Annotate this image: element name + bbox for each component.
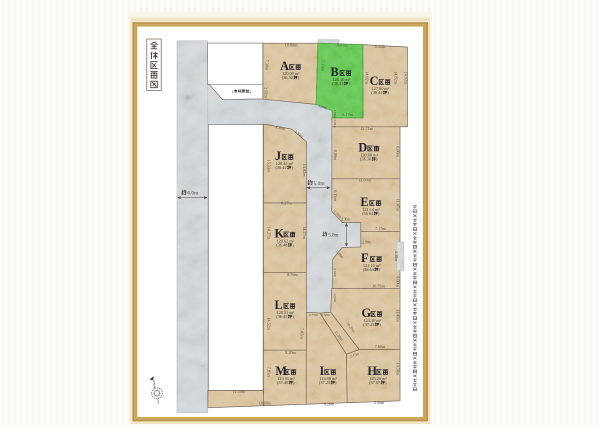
svg-text:6.42m: 6.42m: [375, 44, 386, 49]
svg-text:8.00m: 8.00m: [396, 276, 401, 287]
svg-text:6.0m: 6.0m: [187, 191, 199, 197]
svg-text:11.10m: 11.10m: [233, 389, 246, 394]
svg-text:(36.48: (36.48: [276, 242, 287, 247]
svg-text:12.71m: 12.71m: [360, 126, 373, 131]
svg-text:(37.23: (37.23: [319, 380, 330, 385]
svg-text:14.27m: 14.27m: [267, 227, 272, 240]
svg-text:11.07m: 11.07m: [395, 199, 400, 212]
svg-text:15.33m: 15.33m: [267, 160, 272, 173]
svg-text:7.30m: 7.30m: [265, 60, 270, 71]
svg-text:8.27m: 8.27m: [281, 201, 292, 206]
svg-text:(36.42: (36.42: [275, 165, 286, 170]
svg-text:14.02m: 14.02m: [365, 71, 370, 84]
svg-text:8.20m: 8.20m: [285, 350, 296, 355]
svg-text:10.76m: 10.76m: [372, 284, 385, 289]
svg-text:2.08m: 2.08m: [333, 119, 337, 128]
svg-text:0.75m: 0.75m: [309, 313, 318, 317]
svg-text:2.90m: 2.90m: [362, 240, 371, 244]
svg-text:5.0m: 5.0m: [314, 181, 326, 187]
svg-text:3.30m: 3.30m: [341, 218, 350, 222]
svg-text:7.85m: 7.85m: [267, 367, 272, 378]
svg-text:6.17m: 6.17m: [342, 112, 353, 117]
svg-text:14.02m: 14.02m: [302, 164, 307, 177]
svg-text:(36.32: (36.32: [282, 75, 293, 80]
svg-text:14.82m: 14.82m: [394, 71, 399, 84]
svg-text:7.33m: 7.33m: [321, 60, 326, 71]
svg-text:1.95m: 1.95m: [333, 110, 337, 119]
svg-text:3.00m: 3.00m: [333, 294, 337, 303]
svg-text:(37.48: (37.48: [277, 380, 288, 385]
svg-text:(36.64: (36.64: [362, 211, 374, 216]
svg-text:(37.87: (37.87: [369, 380, 381, 385]
svg-text:12.69m: 12.69m: [358, 178, 371, 183]
svg-text:2.30m: 2.30m: [321, 313, 330, 317]
svg-text:8.85m: 8.85m: [337, 42, 348, 47]
svg-text:14.92m: 14.92m: [404, 72, 409, 85]
svg-text:2.92m: 2.92m: [264, 87, 269, 98]
svg-text:7.05m: 7.05m: [300, 328, 305, 339]
svg-text:5.0m: 5.0m: [328, 233, 338, 238]
svg-text:(36.45: (36.45: [276, 314, 287, 319]
svg-text:11.49m: 11.49m: [395, 309, 400, 322]
svg-text:(38.41: (38.41: [371, 90, 382, 95]
svg-text:8.20m: 8.20m: [324, 402, 335, 407]
svg-text:4.30m: 4.30m: [394, 251, 399, 262]
svg-text:8.00m: 8.00m: [395, 146, 400, 157]
svg-text:8.00m: 8.00m: [333, 150, 338, 161]
svg-text:13.58m: 13.58m: [395, 363, 400, 376]
svg-text:7.15m: 7.15m: [375, 226, 386, 231]
svg-text:14.52m: 14.52m: [267, 317, 272, 330]
svg-text:(36.33: (36.33: [332, 81, 343, 86]
svg-text:8.56m: 8.56m: [287, 272, 298, 277]
svg-text:2.33m: 2.33m: [333, 268, 337, 277]
svg-text:14.27m: 14.27m: [302, 226, 307, 239]
svg-text:8.06m: 8.06m: [374, 400, 385, 405]
svg-text:(36.63: (36.63: [363, 267, 374, 272]
svg-text:10.60m: 10.60m: [259, 401, 272, 406]
svg-text:(36.30: (36.30: [360, 156, 371, 161]
svg-text:6.13m: 6.13m: [333, 190, 338, 201]
svg-text:10.80m: 10.80m: [285, 43, 298, 48]
svg-text:(37.23: (37.23: [363, 322, 374, 327]
svg-text:7.60m: 7.60m: [375, 344, 386, 349]
